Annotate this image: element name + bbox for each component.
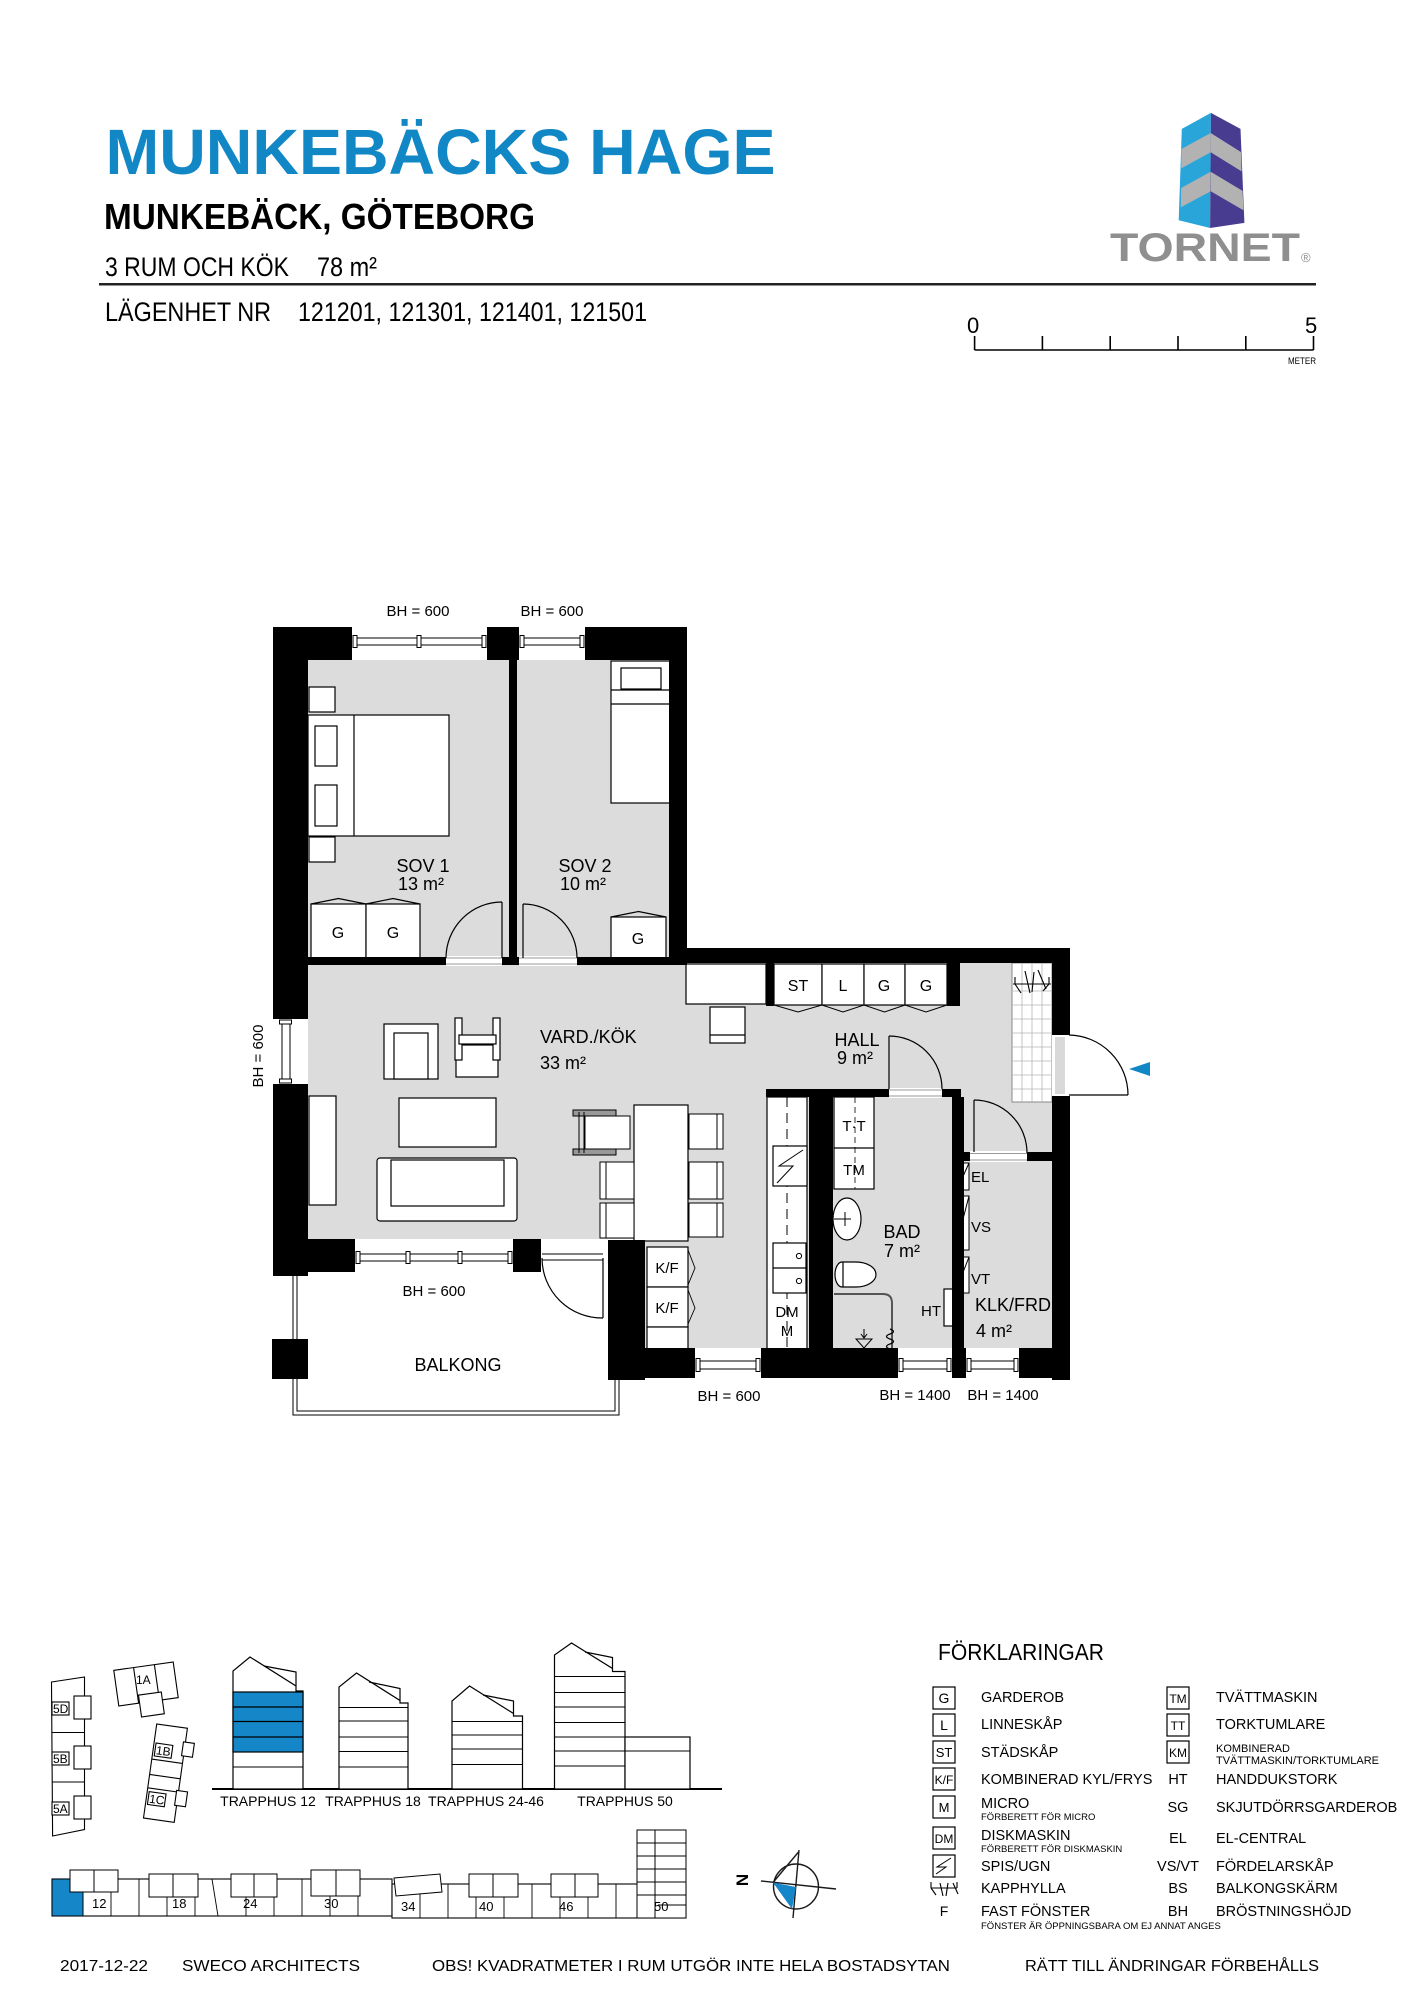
svg-text:L: L <box>839 978 848 995</box>
svg-text:5: 5 <box>1305 313 1317 338</box>
svg-text:HT: HT <box>1168 1772 1187 1788</box>
svg-text:FÖRBERETT FÖR MICRO: FÖRBERETT FÖR MICRO <box>981 1812 1095 1823</box>
svg-text:TT: TT <box>1171 1719 1186 1733</box>
svg-text:46: 46 <box>559 1899 573 1914</box>
svg-text:HANDDUKSTORK: HANDDUKSTORK <box>1216 1772 1338 1788</box>
svg-text:FÖNSTER ÄR ÖPPNINGSBARA OM EJ: FÖNSTER ÄR ÖPPNINGSBARA OM EJ ANNAT ANGE… <box>981 1921 1221 1932</box>
svg-text:VT: VT <box>971 1271 990 1288</box>
svg-text:TRAPPHUS 12: TRAPPHUS 12 <box>220 1793 316 1809</box>
svg-text:BH = 600: BH = 600 <box>403 1283 466 1300</box>
svg-text:N: N <box>733 1874 752 1886</box>
svg-text:4 m²: 4 m² <box>976 1321 1012 1341</box>
svg-text:KAPPHYLLA: KAPPHYLLA <box>981 1881 1066 1897</box>
svg-text:SKJUTDÖRRSGARDEROB: SKJUTDÖRRSGARDEROB <box>1216 1798 1397 1816</box>
svg-text:K/F: K/F <box>935 1773 954 1787</box>
svg-text:18: 18 <box>172 1896 186 1911</box>
svg-text:BH = 1400: BH = 1400 <box>879 1387 950 1404</box>
svg-text:HALL: HALL <box>834 1030 879 1050</box>
svg-text:30: 30 <box>324 1896 338 1911</box>
svg-text:EL: EL <box>1169 1831 1187 1847</box>
svg-text:FÖRDELARSKÅP: FÖRDELARSKÅP <box>1216 1857 1334 1875</box>
svg-text:TRAPPHUS 18: TRAPPHUS 18 <box>325 1793 421 1809</box>
svg-text:KOMBINERAD: KOMBINERAD <box>1216 1743 1290 1755</box>
svg-text:BRÖSTNINGSHÖJD: BRÖSTNINGSHÖJD <box>1216 1902 1351 1920</box>
svg-text:BH = 600: BH = 600 <box>698 1388 761 1405</box>
svg-text:10 m²: 10 m² <box>560 874 606 894</box>
svg-text:G: G <box>939 1690 950 1706</box>
svg-text:2017-12-22: 2017-12-22 <box>60 1958 148 1975</box>
svg-text:FÖRBERETT FÖR DISKMASKIN: FÖRBERETT FÖR DISKMASKIN <box>981 1844 1122 1855</box>
svg-text:VS: VS <box>971 1219 991 1236</box>
svg-text:TVÄTTMASKIN: TVÄTTMASKIN <box>1216 1689 1318 1706</box>
svg-text:TORNET: TORNET <box>1110 226 1300 270</box>
svg-text:BH = 600: BH = 600 <box>521 603 584 620</box>
svg-text:5D: 5D <box>53 1702 69 1716</box>
svg-text:LÄGENHET NR: LÄGENHET NR <box>105 297 271 327</box>
svg-text:9 m²: 9 m² <box>837 1048 873 1068</box>
svg-text:78 m²: 78 m² <box>317 252 377 282</box>
svg-text:BH = 600: BH = 600 <box>387 603 450 620</box>
svg-text:GARDEROB: GARDEROB <box>981 1690 1064 1706</box>
svg-text:OBS! KVADRATMETER I RUM UTGÖR: OBS! KVADRATMETER I RUM UTGÖR INTE HELA … <box>432 1957 950 1975</box>
svg-text:VS/VT: VS/VT <box>1157 1859 1199 1875</box>
svg-text:BH: BH <box>1168 1904 1188 1920</box>
svg-text:SPIS/UGN: SPIS/UGN <box>981 1859 1050 1875</box>
svg-text:HT: HT <box>921 1303 941 1320</box>
svg-text:M: M <box>781 1323 794 1340</box>
svg-text:FAST FÖNSTER: FAST FÖNSTER <box>981 1902 1090 1920</box>
svg-text:DM: DM <box>935 1832 954 1846</box>
svg-text:K/F: K/F <box>655 1300 678 1317</box>
svg-text:TVÄTTMASKIN/TORKTUMLARE: TVÄTTMASKIN/TORKTUMLARE <box>1216 1755 1379 1767</box>
svg-text:TRAPPHUS 50: TRAPPHUS 50 <box>577 1793 673 1809</box>
svg-text:DM: DM <box>775 1304 798 1321</box>
svg-text:G: G <box>920 978 932 995</box>
svg-text:5B: 5B <box>53 1752 68 1766</box>
svg-text:BAD: BAD <box>883 1222 920 1242</box>
svg-text:LINNESKÅP: LINNESKÅP <box>981 1716 1062 1733</box>
svg-text:ST: ST <box>788 978 809 995</box>
svg-text:50: 50 <box>654 1899 668 1914</box>
svg-text:24: 24 <box>243 1896 257 1911</box>
svg-text:40: 40 <box>479 1899 493 1914</box>
svg-text:®: ® <box>1301 250 1311 265</box>
svg-text:EL-CENTRAL: EL-CENTRAL <box>1216 1831 1306 1847</box>
svg-text:ST: ST <box>936 1745 953 1760</box>
svg-text:13 m²: 13 m² <box>398 874 444 894</box>
svg-text:L: L <box>940 1717 948 1733</box>
svg-text:1A: 1A <box>136 1673 151 1687</box>
svg-text:BH = 600: BH = 600 <box>250 1025 267 1088</box>
svg-text:TORKTUMLARE: TORKTUMLARE <box>1216 1717 1326 1733</box>
svg-text:T·T: T·T <box>842 1118 865 1135</box>
svg-text:BALKONG: BALKONG <box>414 1355 501 1375</box>
svg-text:DISKMASKIN: DISKMASKIN <box>981 1828 1070 1844</box>
svg-text:TM: TM <box>843 1162 865 1179</box>
svg-text:F: F <box>940 1903 949 1919</box>
svg-text:TM: TM <box>1169 1692 1186 1706</box>
svg-text:TRAPPHUS 24-46: TRAPPHUS 24-46 <box>428 1793 544 1809</box>
svg-text:SG: SG <box>1168 1800 1189 1816</box>
svg-text:M: M <box>939 1800 950 1815</box>
svg-text:SWECO ARCHITECTS: SWECO ARCHITECTS <box>182 1958 360 1975</box>
svg-text:G: G <box>332 925 344 942</box>
svg-text:5A: 5A <box>53 1802 68 1816</box>
svg-text:MICRO: MICRO <box>981 1796 1029 1812</box>
svg-text:SOV 2: SOV 2 <box>558 856 611 876</box>
svg-text:SOV 1: SOV 1 <box>396 856 449 876</box>
svg-text:K/F: K/F <box>655 1260 678 1277</box>
svg-text:KM: KM <box>1169 1746 1187 1760</box>
svg-text:RÄTT TILL ÄNDRINGAR FÖRBEHÅLLS: RÄTT TILL ÄNDRINGAR FÖRBEHÅLLS <box>1025 1956 1319 1975</box>
svg-text:MUNKEBÄCKS HAGE: MUNKEBÄCKS HAGE <box>106 116 776 188</box>
svg-text:7 m²: 7 m² <box>884 1241 920 1261</box>
svg-text:BALKONGSKÄRM: BALKONGSKÄRM <box>1216 1880 1338 1897</box>
svg-text:METER: METER <box>1288 356 1316 367</box>
svg-text:12: 12 <box>92 1896 106 1911</box>
svg-text:EL: EL <box>971 1169 989 1186</box>
svg-text:121201, 121301, 121401, 121501: 121201, 121301, 121401, 121501 <box>298 297 647 327</box>
svg-text:VARD./KÖK: VARD./KÖK <box>540 1027 637 1047</box>
svg-text:BH = 1400: BH = 1400 <box>967 1387 1038 1404</box>
svg-text:3 RUM OCH KÖK: 3 RUM OCH KÖK <box>105 252 289 282</box>
svg-text:G: G <box>878 978 890 995</box>
svg-text:1C: 1C <box>148 1792 165 1808</box>
svg-text:1B: 1B <box>155 1743 171 1759</box>
svg-text:34: 34 <box>401 1899 415 1914</box>
svg-text:STÄDSKÅP: STÄDSKÅP <box>981 1744 1058 1761</box>
svg-text:BS: BS <box>1168 1881 1187 1897</box>
svg-text:0: 0 <box>967 313 979 338</box>
svg-text:G: G <box>387 925 399 942</box>
svg-text:KLK/FRD: KLK/FRD <box>975 1295 1051 1315</box>
svg-text:FÖRKLARINGAR: FÖRKLARINGAR <box>938 1639 1104 1665</box>
svg-text:33 m²: 33 m² <box>540 1053 586 1073</box>
svg-text:G: G <box>632 931 644 948</box>
svg-text:KOMBINERAD KYL/FRYS: KOMBINERAD KYL/FRYS <box>981 1772 1152 1788</box>
svg-text:MUNKEBÄCK, GÖTEBORG: MUNKEBÄCK, GÖTEBORG <box>104 196 535 237</box>
